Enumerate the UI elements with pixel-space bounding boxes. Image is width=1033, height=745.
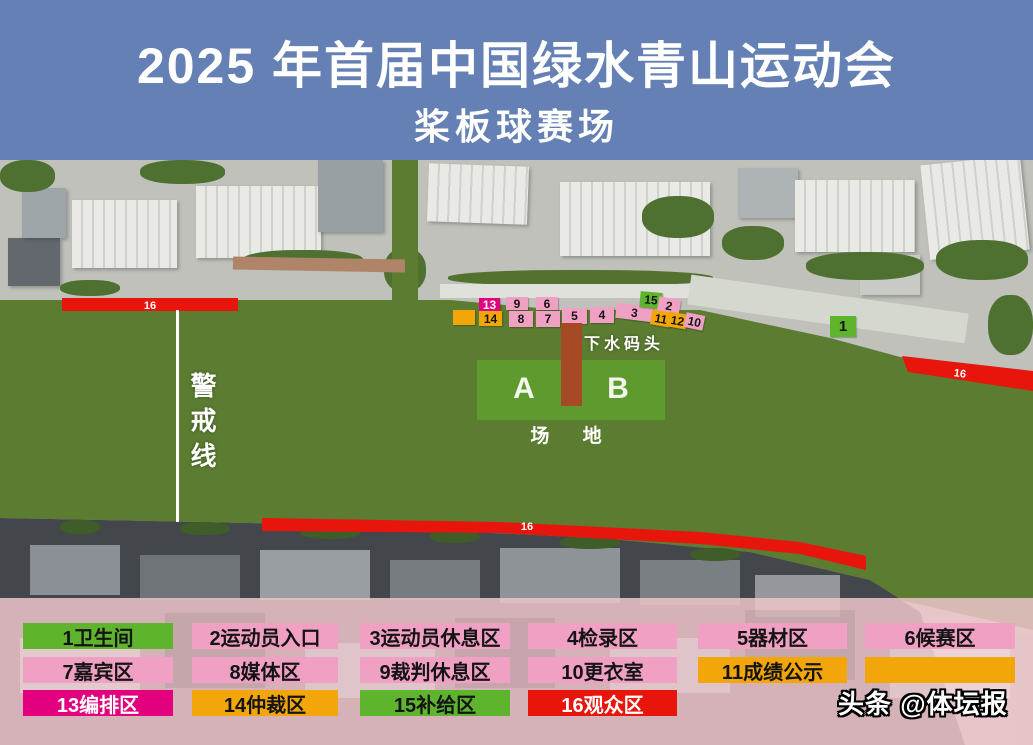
field-b-label: B xyxy=(598,372,638,406)
legend-item-16观众区: 16观众区 xyxy=(528,690,677,716)
legend-item-2运动员入口: 2运动员入口 xyxy=(192,623,338,649)
cordon-line xyxy=(176,310,179,522)
legend-item-4检录区: 4检录区 xyxy=(528,623,677,649)
title-band: 2025 年首届中国绿水青山运动会 桨板球赛场 xyxy=(0,0,1033,160)
legend-item-blank xyxy=(865,657,1015,683)
legend-item-5器材区: 5器材区 xyxy=(698,623,847,649)
legend-item-6候赛区: 6候赛区 xyxy=(865,623,1015,649)
launch-dock-label: 下水码头 xyxy=(584,330,664,354)
legend-item-15补给区: 15补给区 xyxy=(360,690,510,716)
spectator-bar-label: 16 xyxy=(953,367,967,380)
legend-item-3运动员休息区: 3运动员休息区 xyxy=(360,623,510,649)
venue-subtitle: 桨板球赛场 xyxy=(0,98,1033,150)
legend-item-13编排区: 13编排区 xyxy=(23,690,173,716)
zone-marker-1: 1 xyxy=(830,316,856,337)
legend-item-8媒体区: 8媒体区 xyxy=(192,657,338,683)
zone-marker-5: 5 xyxy=(562,308,587,324)
zone-marker-8: 8 xyxy=(509,311,533,327)
venue-map: 16 16 16 警戒线 A B 场 地 下水码头 13149867543152… xyxy=(0,160,1033,745)
zone-marker-9: 9 xyxy=(506,297,528,310)
legend-item-9裁判休息区: 9裁判休息区 xyxy=(360,657,510,683)
zone-marker-4: 4 xyxy=(590,307,614,323)
field-caption: 场 地 xyxy=(513,421,633,448)
zone-marker-7: 7 xyxy=(536,311,560,327)
spectator-bar-right xyxy=(902,356,1033,391)
legend-item-7嘉宾区: 7嘉宾区 xyxy=(23,657,173,683)
spectator-bar-label: 16 xyxy=(144,300,156,312)
legend-item-14仲裁区: 14仲裁区 xyxy=(192,690,338,716)
zone-marker-13: 13 xyxy=(479,298,500,311)
watermark: 头条 @体坛报 xyxy=(838,684,1023,721)
launch-dock xyxy=(561,323,582,406)
spectator-bar-label: 16 xyxy=(521,521,533,533)
event-title: 2025 年首届中国绿水青山运动会 xyxy=(0,26,1033,98)
legend-item-11成绩公示: 11成绩公示 xyxy=(698,657,847,683)
zone-marker-blank xyxy=(453,310,475,325)
zone-marker-6: 6 xyxy=(536,297,558,310)
poster: 2025 年首届中国绿水青山运动会 桨板球赛场 xyxy=(0,0,1033,745)
legend-item-10更衣室: 10更衣室 xyxy=(528,657,677,683)
spectator-bar-bottom xyxy=(262,518,866,570)
field-a-label: A xyxy=(504,372,544,406)
cordon-label: 警戒线 xyxy=(184,372,221,477)
legend-item-1卫生间: 1卫生间 xyxy=(23,623,173,649)
zone-marker-14: 14 xyxy=(479,311,502,326)
